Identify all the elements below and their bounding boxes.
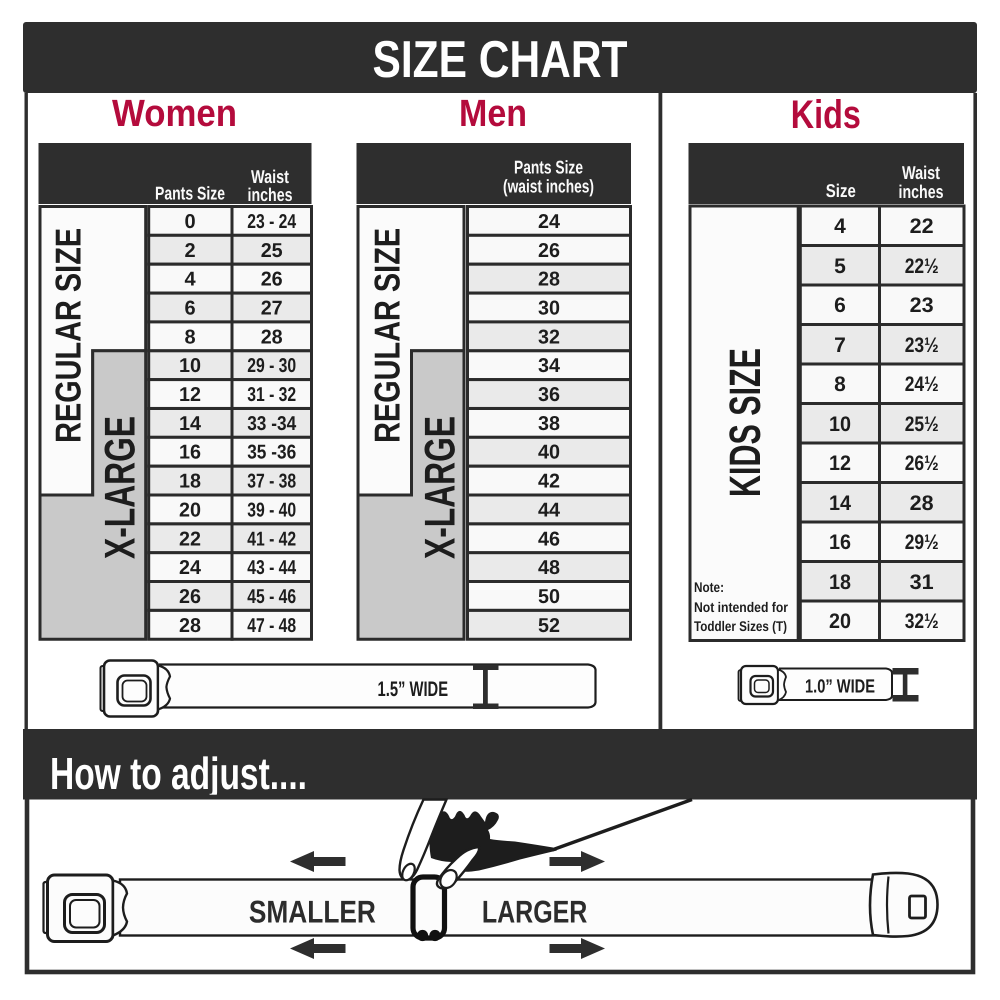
- svg-text:26: 26: [179, 586, 201, 608]
- svg-text:14: 14: [829, 492, 851, 515]
- svg-text:23 - 24: 23 - 24: [247, 211, 297, 233]
- svg-text:25: 25: [261, 240, 283, 262]
- svg-text:12: 12: [179, 384, 201, 406]
- svg-text:Kids: Kids: [791, 93, 861, 137]
- svg-text:33 -34: 33 -34: [247, 413, 297, 435]
- svg-text:18: 18: [179, 471, 201, 493]
- svg-text:28: 28: [910, 492, 934, 515]
- svg-text:20: 20: [829, 610, 851, 633]
- svg-text:30: 30: [538, 298, 560, 320]
- svg-text:Not intended for: Not intended for: [694, 599, 788, 615]
- svg-text:LARGER: LARGER: [482, 894, 588, 930]
- svg-text:25½: 25½: [905, 413, 939, 436]
- svg-text:42: 42: [538, 471, 560, 493]
- svg-text:26½: 26½: [905, 452, 939, 475]
- svg-text:29 - 30: 29 - 30: [247, 355, 296, 377]
- svg-text:24½: 24½: [905, 373, 939, 396]
- svg-text:4: 4: [834, 215, 846, 238]
- svg-text:16: 16: [829, 531, 851, 554]
- svg-text:28: 28: [538, 269, 560, 291]
- svg-text:Women: Women: [112, 93, 237, 135]
- svg-text:22: 22: [910, 215, 934, 238]
- svg-text:(waist inches): (waist inches): [503, 176, 594, 197]
- svg-text:41 - 42: 41 - 42: [247, 528, 296, 550]
- svg-text:32½: 32½: [905, 610, 939, 633]
- svg-text:12: 12: [829, 452, 851, 475]
- svg-text:inches: inches: [248, 184, 293, 205]
- svg-text:22: 22: [179, 528, 201, 550]
- svg-text:37 - 38: 37 - 38: [247, 471, 296, 493]
- svg-text:28: 28: [179, 615, 201, 637]
- svg-text:8: 8: [834, 373, 846, 396]
- svg-text:REGULAR SIZE: REGULAR SIZE: [367, 228, 408, 443]
- svg-text:23: 23: [910, 294, 934, 317]
- svg-text:29½: 29½: [905, 531, 939, 554]
- svg-text:SIZE CHART: SIZE CHART: [373, 31, 628, 89]
- svg-text:16: 16: [179, 442, 201, 464]
- svg-text:43 - 44: 43 - 44: [247, 557, 297, 579]
- svg-text:How to adjust....: How to adjust....: [50, 748, 307, 799]
- svg-text:2: 2: [184, 240, 195, 262]
- svg-text:48: 48: [538, 557, 560, 579]
- svg-text:14: 14: [179, 413, 202, 435]
- svg-text:20: 20: [179, 499, 201, 521]
- svg-text:39 - 40: 39 - 40: [247, 499, 296, 521]
- svg-text:31: 31: [910, 571, 934, 594]
- svg-text:45 - 46: 45 - 46: [247, 586, 296, 608]
- svg-text:26: 26: [261, 269, 283, 291]
- svg-text:Toddler Sizes (T): Toddler Sizes (T): [694, 618, 787, 634]
- svg-text:Pants Size: Pants Size: [155, 183, 225, 204]
- svg-text:1.5” WIDE: 1.5” WIDE: [378, 678, 449, 701]
- svg-text:10: 10: [829, 413, 851, 436]
- svg-text:35 -36: 35 -36: [247, 442, 296, 464]
- svg-text:34: 34: [538, 355, 561, 377]
- svg-text:Pants Size: Pants Size: [514, 157, 583, 178]
- svg-text:47 - 48: 47 - 48: [247, 615, 296, 637]
- svg-text:36: 36: [538, 384, 560, 406]
- svg-text:Size: Size: [826, 180, 856, 201]
- svg-text:SMALLER: SMALLER: [249, 894, 376, 930]
- svg-text:26: 26: [538, 240, 560, 262]
- svg-text:22½: 22½: [905, 255, 939, 278]
- svg-text:10: 10: [179, 355, 201, 377]
- svg-text:KIDS SIZE: KIDS SIZE: [721, 348, 770, 497]
- svg-text:7: 7: [834, 334, 846, 357]
- svg-text:31 - 32: 31 - 32: [247, 384, 296, 406]
- svg-text:8: 8: [184, 326, 195, 348]
- svg-text:0: 0: [184, 211, 195, 233]
- svg-text:REGULAR SIZE: REGULAR SIZE: [48, 228, 89, 443]
- svg-text:Men: Men: [459, 93, 527, 135]
- svg-text:38: 38: [538, 413, 560, 435]
- svg-text:24: 24: [538, 211, 561, 233]
- svg-text:27: 27: [261, 298, 283, 320]
- svg-text:1.0” WIDE: 1.0” WIDE: [805, 677, 875, 698]
- svg-text:18: 18: [829, 571, 851, 594]
- svg-text:Note:: Note:: [694, 579, 724, 595]
- svg-text:40: 40: [538, 442, 560, 464]
- svg-text:52: 52: [538, 615, 560, 637]
- svg-text:32: 32: [538, 326, 560, 348]
- svg-text:6: 6: [184, 298, 195, 320]
- svg-text:4: 4: [184, 269, 196, 291]
- svg-text:6: 6: [834, 294, 846, 317]
- svg-text:46: 46: [538, 528, 560, 550]
- svg-text:50: 50: [538, 586, 560, 608]
- svg-text:inches: inches: [899, 181, 944, 202]
- svg-text:24: 24: [179, 557, 202, 579]
- svg-text:X-LARGE: X-LARGE: [97, 416, 145, 559]
- svg-text:44: 44: [538, 499, 561, 521]
- svg-text:28: 28: [261, 326, 283, 348]
- svg-text:5: 5: [834, 255, 846, 278]
- svg-text:Waist: Waist: [902, 162, 940, 183]
- svg-text:X-LARGE: X-LARGE: [416, 416, 464, 559]
- svg-text:23½: 23½: [905, 334, 939, 357]
